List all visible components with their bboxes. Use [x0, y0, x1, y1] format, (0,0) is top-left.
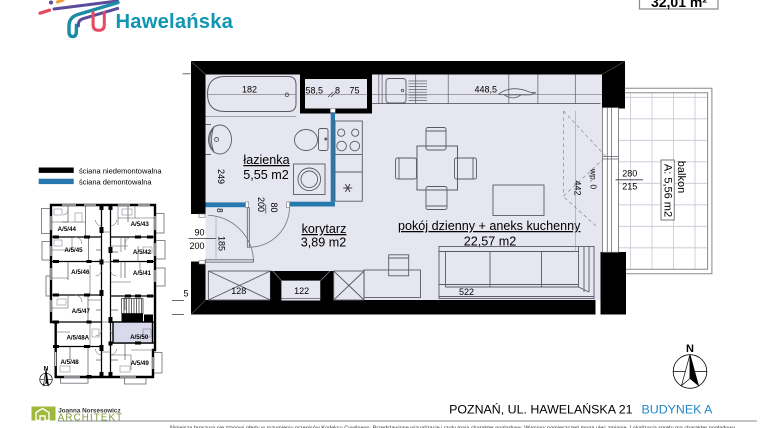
svg-text:A/5/49: A/5/49 [131, 360, 150, 367]
svg-text:A/5/48: A/5/48 [60, 359, 79, 366]
svg-text:Hawelańska: Hawelańska [116, 11, 234, 33]
svg-text:3,89 m2: 3,89 m2 [301, 235, 347, 249]
svg-text:442: 442 [573, 180, 583, 195]
svg-text:A/5/46: A/5/46 [71, 269, 90, 276]
svg-text:A/5/45: A/5/45 [64, 247, 83, 254]
svg-text:ściana niedemontowalna: ściana niedemontowalna [79, 166, 162, 175]
svg-text:BUDYNEK A: BUDYNEK A [642, 402, 714, 416]
svg-text:200: 200 [189, 241, 204, 251]
svg-text:75: 75 [350, 86, 360, 96]
svg-text:A: 5,56 m2: A: 5,56 m2 [662, 164, 674, 217]
svg-text:łazienka: łazienka [243, 153, 289, 167]
svg-text:128: 128 [231, 286, 246, 296]
svg-text:8: 8 [335, 86, 340, 96]
svg-text:N: N [686, 343, 694, 355]
svg-text:korytarz: korytarz [302, 222, 347, 236]
svg-text:pokój dzienny + aneks kuchenny: pokój dzienny + aneks kuchenny [398, 219, 581, 233]
svg-text:522: 522 [459, 287, 474, 297]
svg-text:80: 80 [269, 202, 279, 212]
svg-text:58,5: 58,5 [306, 86, 324, 96]
svg-text:185: 185 [217, 236, 227, 251]
svg-text:5,55 m2: 5,55 m2 [243, 168, 289, 182]
svg-text:182: 182 [242, 84, 257, 94]
svg-text:A/5/47: A/5/47 [72, 308, 91, 315]
svg-text:POZNAŃ, UL. HAWELAŃSKA 21: POZNAŃ, UL. HAWELAŃSKA 21 [449, 401, 632, 416]
svg-text:ściana demontowalna: ściana demontowalna [79, 178, 152, 187]
svg-text:balkon: balkon [675, 161, 687, 193]
svg-text:ARCHITEKT: ARCHITEKT [58, 412, 123, 423]
svg-text:249: 249 [216, 169, 226, 184]
svg-text:90: 90 [194, 228, 204, 238]
svg-text:200: 200 [256, 197, 266, 212]
svg-text:280: 280 [622, 169, 637, 179]
svg-text:A/5/42: A/5/42 [133, 249, 152, 256]
svg-text:wp. 0: wp. 0 [589, 168, 599, 190]
svg-text:448,5: 448,5 [475, 85, 498, 95]
svg-text:A/5/43: A/5/43 [131, 221, 150, 228]
svg-text:A/5/41: A/5/41 [133, 270, 152, 277]
svg-text:A/5/44: A/5/44 [58, 226, 77, 233]
svg-text:5: 5 [184, 289, 189, 299]
svg-text:215: 215 [622, 182, 637, 192]
svg-text:8: 8 [215, 208, 224, 213]
svg-text:N: N [44, 366, 49, 373]
svg-text:122: 122 [294, 286, 309, 296]
svg-text:32,01 m²: 32,01 m² [651, 0, 707, 10]
svg-text:A/5/50: A/5/50 [130, 334, 149, 341]
svg-text:A/5/48A: A/5/48A [66, 335, 89, 342]
